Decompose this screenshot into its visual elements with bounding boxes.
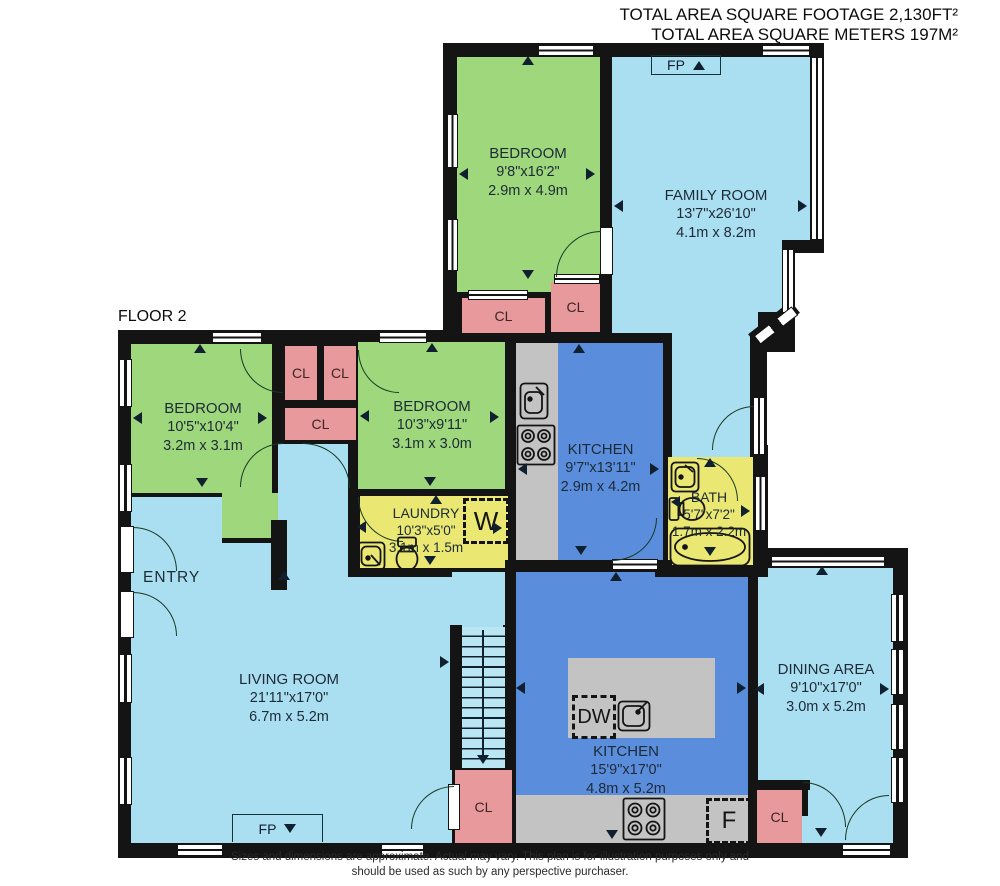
stair-rail	[482, 630, 484, 756]
direction-arrow	[610, 572, 622, 581]
direction-arrow	[704, 458, 716, 467]
room-dimensions-label: 21'11"x17'0"	[233, 689, 345, 708]
room-name-label: KITCHEN	[565, 742, 687, 761]
label-bedroom-top: BEDROOM 9'8"x16'2" 2.9m x 4.9m	[455, 144, 601, 201]
closet-label: CL	[331, 365, 349, 381]
direction-arrow	[614, 200, 623, 212]
window	[612, 559, 658, 570]
hallway	[452, 572, 505, 627]
direction-arrow	[516, 682, 525, 694]
window	[782, 249, 794, 313]
direction-arrow	[194, 344, 206, 353]
sink-icon	[519, 382, 549, 420]
direction-arrow	[573, 344, 585, 353]
direction-arrow	[816, 566, 828, 575]
up-arrow-icon	[693, 61, 705, 70]
label-kitchen-upper: KITCHEN 9'7"x13'11" 2.9m x 4.2m	[538, 440, 663, 497]
closet: CL	[285, 408, 356, 440]
direction-arrow	[196, 478, 208, 487]
room-dimensions-label: 13'7"x26'10"	[636, 205, 796, 224]
closet: CL	[455, 770, 512, 843]
label-bath: BATH 5'7"x7'2" 1.7m x 2.2m	[664, 489, 754, 540]
stair-direction-arrow	[477, 755, 489, 764]
window	[119, 464, 132, 512]
room-dimensions-label: 4.8m x 5.2m	[565, 780, 687, 799]
window	[891, 704, 904, 750]
closet: CL	[757, 790, 802, 843]
dishwasher-label: DW	[577, 706, 610, 729]
closet-label: CL	[495, 308, 513, 324]
label-kitchen-lower: KITCHEN 15'9"x17'0" 4.8m x 5.2m	[565, 742, 687, 799]
room-name-label: LIVING ROOM	[233, 670, 345, 689]
room-dimensions-label: 5'7"x7'2"	[664, 506, 754, 523]
total-area-sqm: TOTAL AREA SQUARE METERS 197M²	[619, 25, 958, 45]
direction-arrow	[755, 683, 764, 695]
room-dimensions-label: 10'3"x5'0"	[375, 522, 477, 539]
direction-arrow	[575, 546, 587, 555]
label-bedroom-mid: BEDROOM 10'3"x9'11" 3.1m x 3.0m	[362, 397, 502, 454]
room-name-label: DINING AREA	[768, 660, 884, 679]
window	[762, 45, 810, 56]
room-dimensions-label: 2.9m x 4.2m	[538, 478, 663, 497]
window	[753, 397, 765, 455]
room-dimensions-label: 9'8"x16'2"	[455, 163, 601, 182]
fridge: F	[706, 798, 752, 844]
direction-arrow	[424, 556, 436, 565]
hallway	[222, 543, 278, 580]
room-dimensions-label: 4.1m x 8.2m	[636, 224, 796, 243]
label-laundry: LAUNDRY 10'3"x5'0" 3.1m x 1.5m	[375, 505, 477, 556]
total-area-sqft: TOTAL AREA SQUARE FOOTAGE 2,130FT²	[619, 5, 958, 25]
room-family	[612, 240, 782, 312]
window	[119, 757, 132, 805]
disclaimer-line: Sizes and dimensions are approximate. Ac…	[0, 850, 980, 865]
window	[755, 476, 766, 531]
sink-icon	[617, 698, 651, 732]
door-panel	[120, 526, 134, 573]
down-arrow-icon	[284, 824, 296, 833]
closet-label: CL	[312, 416, 330, 432]
room-dimensions-label: 9'7"x13'11"	[538, 459, 663, 478]
fireplace-label: FP	[667, 57, 685, 73]
direction-arrow	[815, 828, 827, 837]
room-dimensions-label: 15'9"x17'0"	[565, 761, 687, 780]
window	[538, 45, 594, 56]
window	[119, 654, 132, 703]
door-panel	[120, 591, 134, 638]
direction-arrow	[440, 656, 449, 668]
room-dimensions-label: 6.7m x 5.2m	[233, 708, 345, 727]
wall	[505, 333, 672, 343]
room-dimensions-label: 3.0m x 5.2m	[768, 698, 884, 717]
total-area-header: TOTAL AREA SQUARE FOOTAGE 2,130FT² TOTAL…	[619, 5, 958, 45]
room-dimensions-label: 9'10"x17'0"	[768, 679, 884, 698]
dishwasher: DW	[572, 695, 616, 739]
room-dimensions-label: 10'5"x10'4"	[133, 418, 273, 437]
fridge-label: F	[722, 807, 737, 835]
label-dining-area: DINING AREA 9'10"x17'0" 3.0m x 5.2m	[768, 660, 884, 717]
room-name-label: BEDROOM	[455, 144, 601, 163]
label-bedroom-left: BEDROOM 10'5"x10'4" 3.2m x 3.1m	[133, 399, 273, 456]
closet: CL	[324, 346, 356, 400]
room-name-label: BATH	[664, 489, 754, 506]
window	[447, 219, 458, 271]
room-family	[612, 312, 758, 333]
direction-arrow	[430, 495, 442, 504]
window	[891, 594, 904, 642]
room-dimensions-label: 1.7m x 2.2m	[664, 523, 754, 540]
room-dimensions-label: 10'3"x9'11"	[362, 416, 502, 435]
window	[468, 290, 528, 300]
room-name-label: LAUNDRY	[375, 505, 477, 522]
direction-arrow	[518, 463, 527, 475]
fireplace: FP	[651, 55, 721, 75]
direction-arrow	[426, 343, 438, 352]
direction-arrow	[278, 571, 290, 580]
window	[379, 332, 427, 343]
window	[212, 332, 262, 343]
closet-label: CL	[771, 809, 789, 825]
room-bedroom-left	[222, 493, 278, 538]
direction-arrow	[522, 56, 534, 65]
closet: CL	[285, 346, 317, 400]
closet: CL	[462, 298, 545, 333]
closet-label: CL	[475, 799, 493, 815]
direction-arrow	[737, 682, 746, 694]
room-dimensions-label: 3.1m x 3.0m	[362, 435, 502, 454]
fireplace: FP	[232, 814, 323, 842]
closet-label: CL	[292, 365, 310, 381]
label-living-room: LIVING ROOM 21'11"x17'0" 6.7m x 5.2m	[233, 670, 345, 727]
room-dimensions-label: 3.2m x 3.1m	[133, 437, 273, 456]
window-wall	[811, 57, 823, 240]
floor-label: FLOOR 2	[118, 308, 186, 326]
room-name-label: BEDROOM	[362, 397, 502, 416]
closet-label: CL	[567, 299, 585, 315]
direction-arrow	[357, 521, 366, 533]
direction-arrow	[606, 830, 618, 839]
floor-plan-canvas: TOTAL AREA SQUARE FOOTAGE 2,130FT² TOTAL…	[0, 0, 1000, 886]
disclaimer: Sizes and dimensions are approximate. Ac…	[0, 850, 980, 880]
label-family-room: FAMILY ROOM 13'7"x26'10" 4.1m x 8.2m	[636, 186, 796, 243]
door-panel	[600, 227, 613, 275]
window	[119, 359, 132, 407]
window	[891, 649, 904, 695]
room-name-label: KITCHEN	[538, 440, 663, 459]
room-dimensions-label: 3.1m x 1.5m	[375, 539, 477, 556]
fireplace-label: FP	[259, 821, 277, 837]
direction-arrow	[522, 270, 534, 279]
window	[771, 556, 885, 567]
wall	[450, 625, 462, 770]
room-dimensions-label: 2.9m x 4.9m	[455, 182, 601, 201]
direction-arrow	[493, 522, 502, 534]
disclaimer-line: should be used as such by any perspectiv…	[0, 865, 980, 880]
label-entry: ENTRY	[143, 569, 200, 587]
room-name-label: FAMILY ROOM	[636, 186, 796, 205]
window	[891, 757, 904, 803]
direction-arrow	[424, 477, 436, 486]
direction-arrow	[798, 200, 807, 212]
closet: CL	[551, 282, 600, 332]
room-name-label: BEDROOM	[133, 399, 273, 418]
stove-icon	[622, 797, 666, 841]
direction-arrow	[704, 547, 716, 556]
